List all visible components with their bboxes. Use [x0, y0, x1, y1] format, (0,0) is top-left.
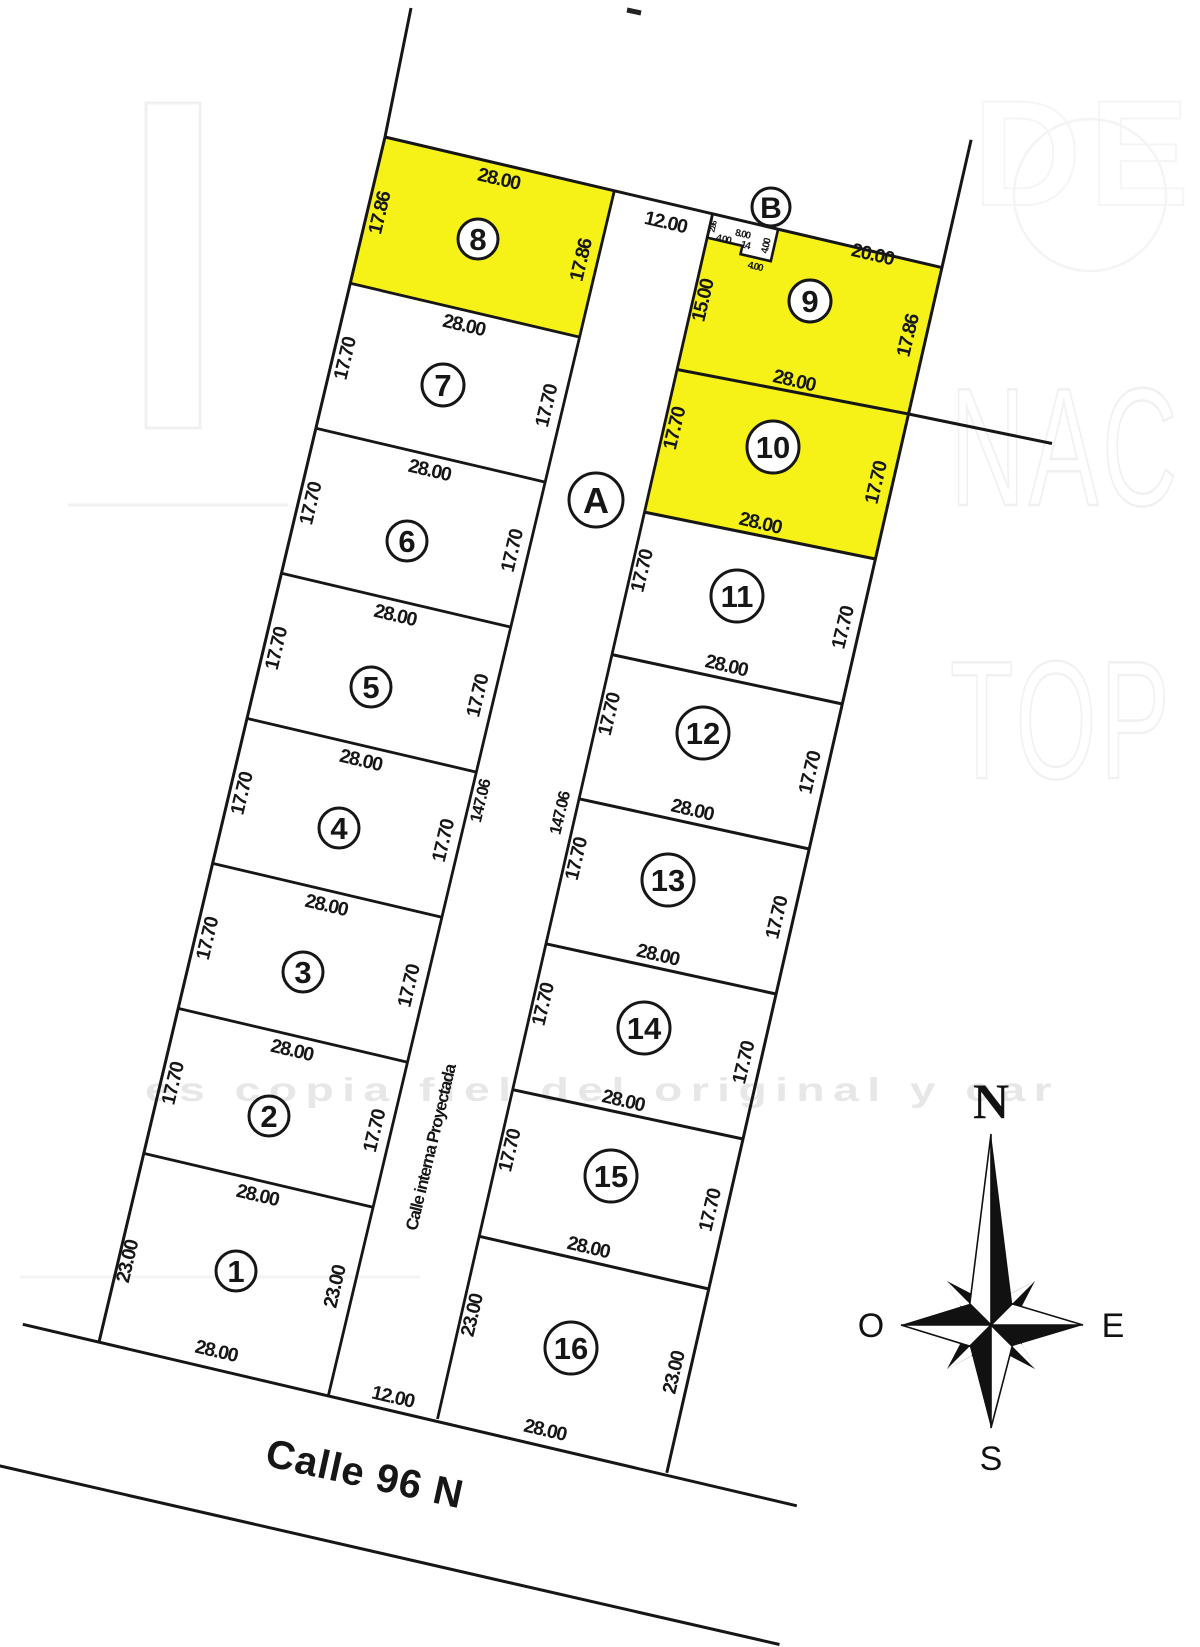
svg-text:14: 14: [627, 1011, 662, 1046]
svg-text:E: E: [1102, 1307, 1125, 1345]
svg-text:11: 11: [721, 579, 754, 614]
svg-text:A: A: [583, 480, 609, 521]
svg-text:1: 1: [227, 1254, 244, 1289]
svg-text:3: 3: [294, 955, 311, 990]
svg-text:4: 4: [330, 811, 348, 846]
svg-text:15: 15: [594, 1159, 628, 1194]
svg-text:5: 5: [362, 670, 379, 705]
svg-text:NAC: NAC: [950, 352, 1181, 541]
svg-text:B: B: [760, 192, 782, 225]
svg-text:S: S: [980, 1440, 1003, 1478]
svg-text:TOP: TOP: [950, 625, 1173, 814]
svg-text:2: 2: [260, 1099, 277, 1134]
svg-text:10: 10: [756, 430, 790, 465]
svg-text:N: N: [973, 1073, 1009, 1129]
svg-text:13: 13: [651, 863, 685, 898]
svg-text:7: 7: [434, 368, 451, 403]
svg-text:16: 16: [554, 1331, 588, 1366]
svg-text:12: 12: [686, 716, 720, 751]
svg-text:9: 9: [801, 284, 818, 319]
svg-text:8: 8: [469, 222, 486, 257]
svg-text:O: O: [858, 1307, 884, 1345]
svg-text:6: 6: [398, 524, 415, 559]
